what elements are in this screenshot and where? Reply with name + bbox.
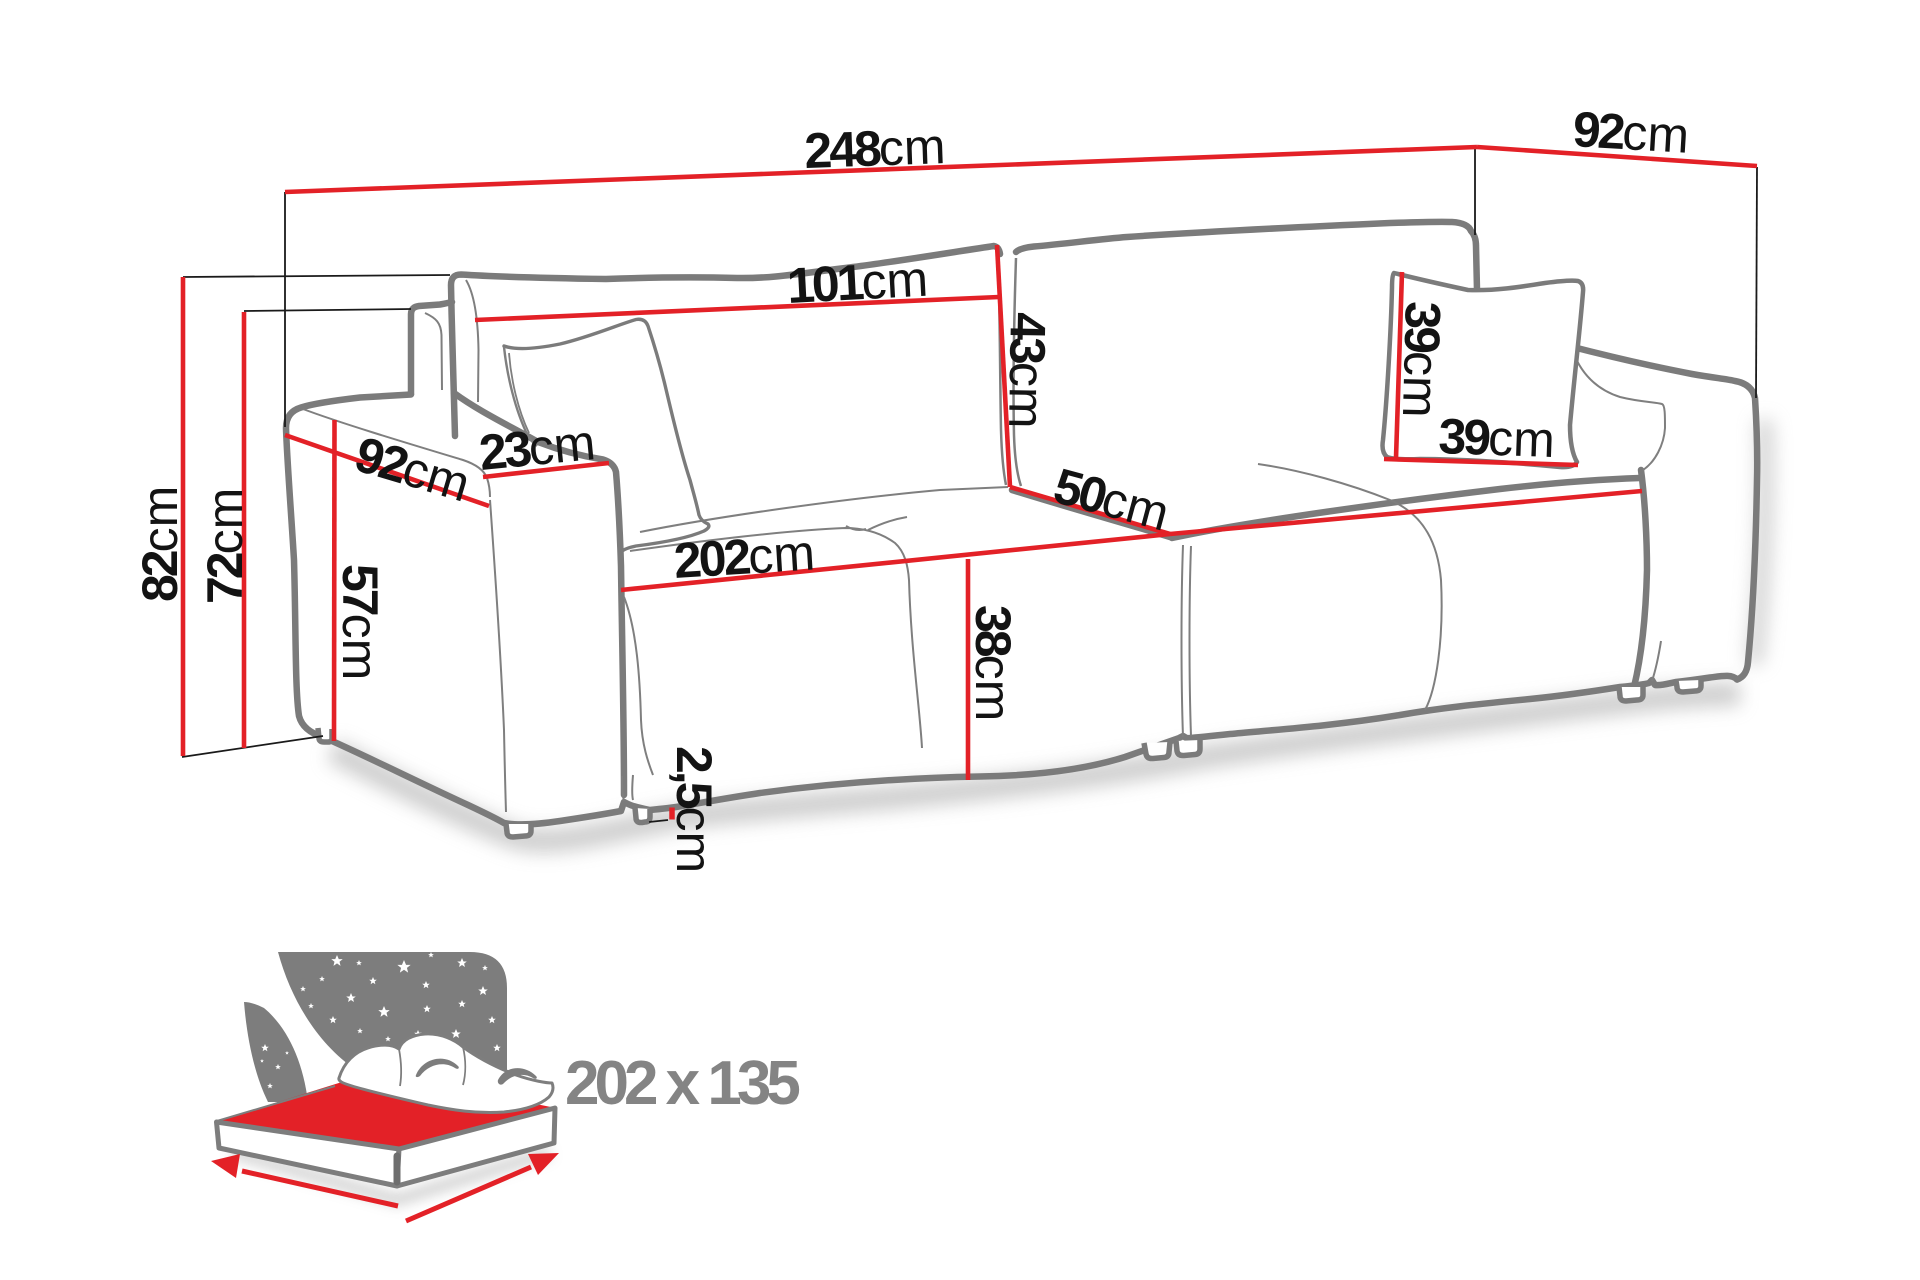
svg-text:82cm: 82cm [132, 486, 188, 602]
svg-text:2,5cm: 2,5cm [666, 746, 722, 873]
svg-text:72cm: 72cm [197, 488, 253, 604]
svg-text:202cm: 202cm [672, 524, 816, 589]
svg-text:38cm: 38cm [965, 605, 1021, 721]
svg-text:43cm: 43cm [998, 312, 1056, 429]
svg-text:23cm: 23cm [477, 414, 598, 481]
svg-text:39cm: 39cm [1392, 301, 1451, 419]
svg-text:248cm: 248cm [803, 118, 946, 179]
svg-text:92cm: 92cm [1571, 101, 1690, 164]
svg-text:39cm: 39cm [1438, 408, 1556, 468]
svg-text:57cm: 57cm [332, 564, 388, 680]
svg-text:50cm: 50cm [1048, 458, 1175, 542]
svg-text:101cm: 101cm [786, 251, 930, 314]
svg-text:202 x 135: 202 x 135 [565, 1049, 799, 1118]
svg-text:92cm: 92cm [349, 426, 476, 513]
